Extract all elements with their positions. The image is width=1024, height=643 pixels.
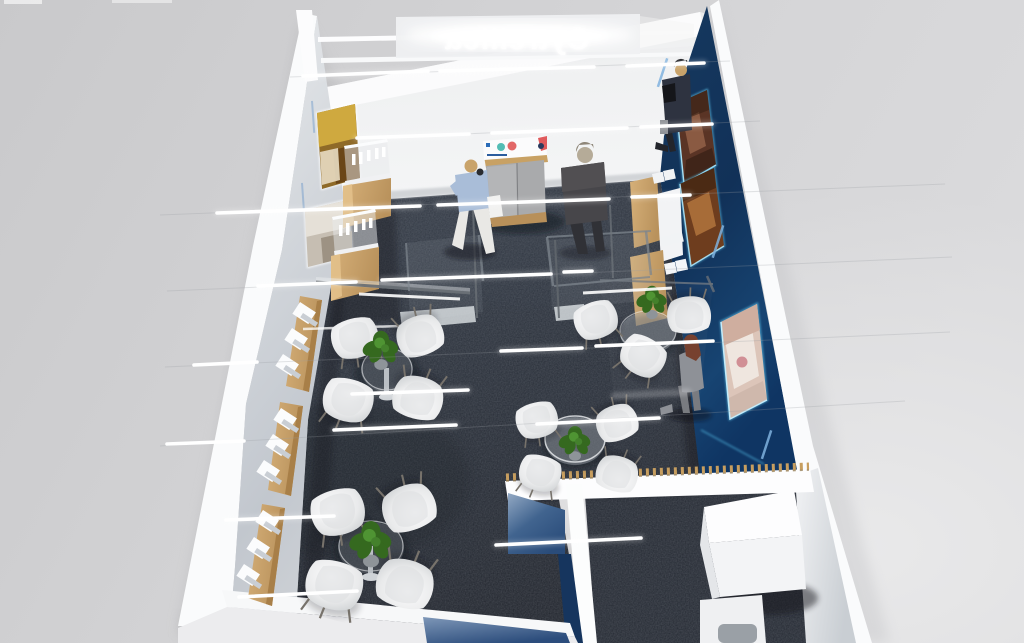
svg-text:Cytrellica: Cytrellica [444,23,589,56]
